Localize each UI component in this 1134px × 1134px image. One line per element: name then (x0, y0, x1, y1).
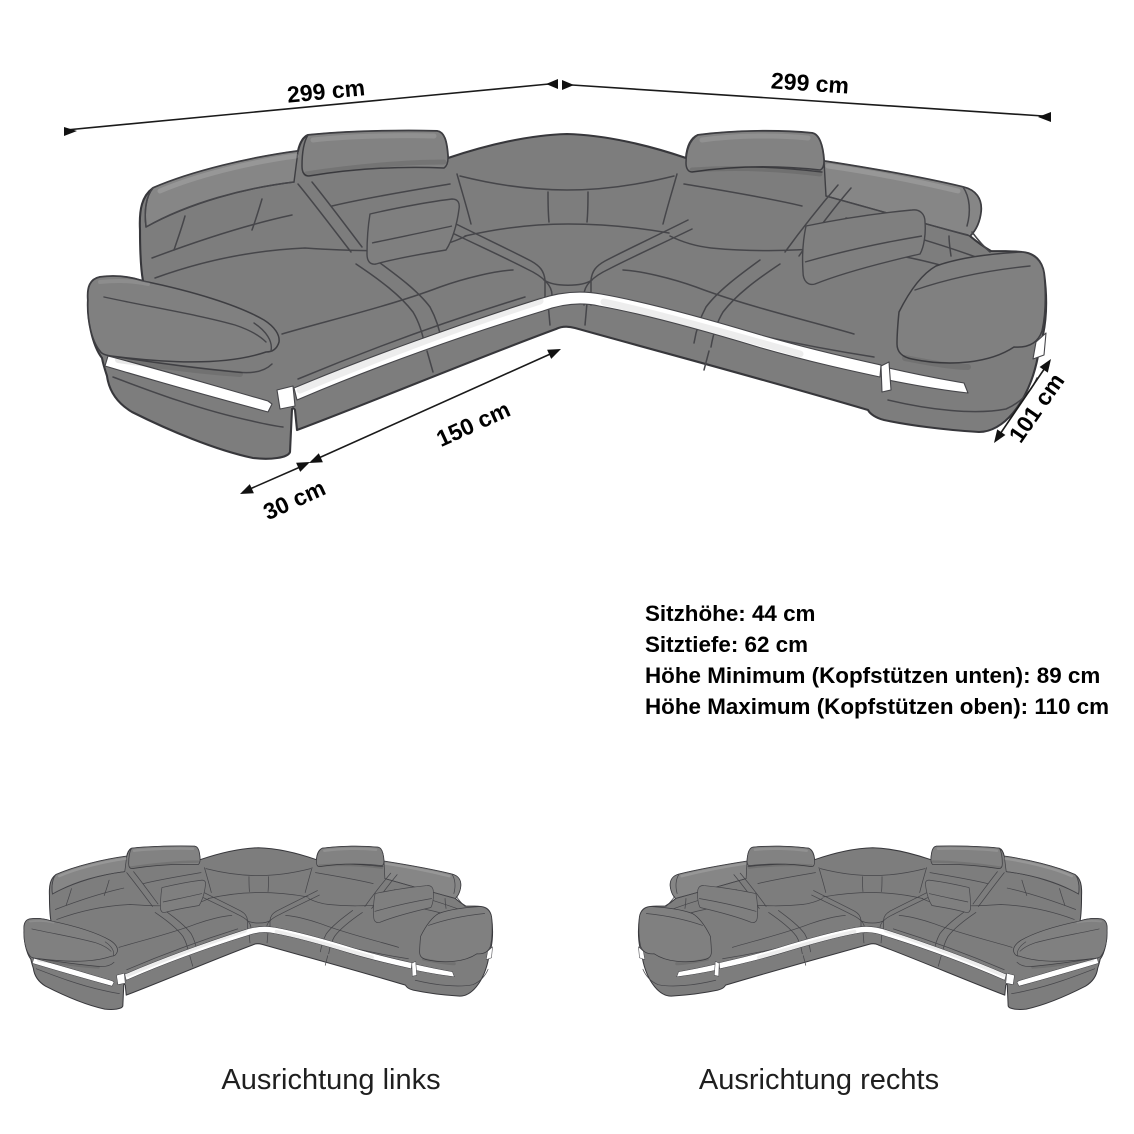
svg-text:299 cm: 299 cm (770, 67, 850, 98)
svg-text:Sitztiefe: 62 cm: Sitztiefe: 62 cm (645, 632, 808, 657)
svg-text:30 cm: 30 cm (259, 474, 329, 525)
svg-text:Ausrichtung rechts: Ausrichtung rechts (699, 1064, 939, 1096)
svg-text:Höhe Minimum (Kopfstützen unte: Höhe Minimum (Kopfstützen unten): 89 cm (645, 663, 1100, 688)
svg-text:150 cm: 150 cm (432, 396, 514, 452)
svg-text:Ausrichtung links: Ausrichtung links (221, 1064, 440, 1096)
svg-text:Sitzhöhe: 44 cm: Sitzhöhe: 44 cm (645, 601, 815, 626)
svg-text:Höhe Maximum (Kopfstützen oben: Höhe Maximum (Kopfstützen oben): 110 cm (645, 694, 1109, 719)
